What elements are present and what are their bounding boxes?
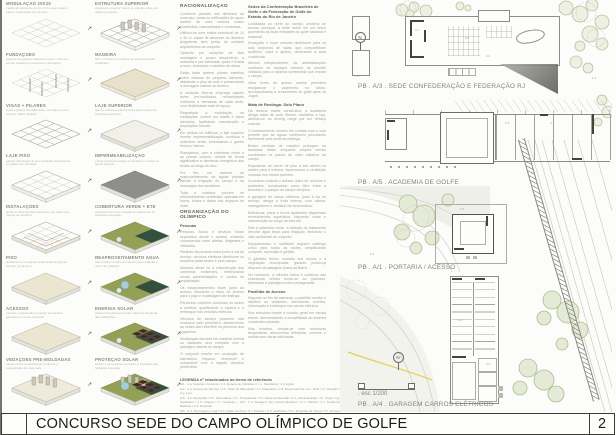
diagram-axon-drawing [6, 371, 86, 407]
dimension-text: 3.3 [486, 54, 490, 58]
a4-workshop-room [452, 362, 476, 400]
a1-wall [454, 248, 464, 250]
a5-wall [572, 158, 582, 160]
titlebar-left-cell [2, 414, 27, 434]
subheading-pavilhao: Pavilhão de Acesso [248, 289, 326, 294]
diagram-cell: REAPROVEITAMENTO ÁGUA reservatório recol… [95, 256, 181, 307]
wall-left-face [12, 185, 46, 203]
dimension-text: 4.1 [458, 318, 462, 322]
dimension-text: 1.4 [370, 252, 374, 256]
a4-wall [452, 278, 462, 280]
a4-parking-stalls-right [475, 282, 495, 356]
diagram-cell: IMPERMEABILIZAÇÃO manta contínua protege… [95, 154, 181, 205]
a1-kiosk [473, 256, 477, 259]
a5-wall [540, 114, 548, 116]
body-paragraph: Sua estrutura repete o módulo geral em e… [248, 311, 326, 324]
body-paragraph: Estruturas, pisos e forros aparentes dis… [248, 211, 326, 224]
body-paragraph: Da mesma matriz construtiva, a academia … [248, 109, 326, 127]
body-paragraph: No horizonte, a silhueta baixa e contínu… [248, 273, 326, 286]
diagram-axon-drawing [95, 117, 175, 153]
detail-arrow-icon: ↗ [87, 229, 92, 235]
legend-row: A/2 . 2 a. Acesso de Serviço / 2 b. Páti… [180, 388, 340, 396]
a4-wall [452, 356, 466, 358]
a1-kiosk [466, 256, 470, 259]
diagram-caption: painéis alveolares de piso apoiados dire… [6, 160, 72, 167]
diagram-label: MODULAÇÃO 10x10 [6, 2, 92, 7]
plan-label-a3: PB . A/3 . SEDE CONFEDERAÇÃO E FEDERAÇÃO… [358, 83, 525, 90]
diagram-axon-drawing [95, 320, 175, 356]
body-paragraph: Toda a madeira provém de reflorestamento… [180, 191, 244, 209]
diagram-label: FUNDAÇÕES [6, 53, 92, 58]
diagram-caption: malha de referência de 10 x 10 m que ord… [6, 7, 72, 14]
body-paragraph: Por fim, um sistema de reaproveitamento … [180, 171, 244, 189]
diagram-cell: VEDAÇÕES PRÉ-MOLDADAS painéis leves rema… [6, 358, 92, 409]
diagram-axon-drawing [6, 117, 86, 153]
a5-column-dots [390, 166, 460, 168]
diagram-cell: LAJE SUPERIOR laje de cobertura plana pr… [95, 104, 181, 155]
ete-tank-icon [116, 288, 121, 293]
a1-wall [486, 216, 488, 226]
detail-arrow-icon: ↗ [87, 280, 92, 286]
a4-equipment-pad [498, 393, 503, 398]
a3-wall [410, 56, 424, 58]
body-paragraph: Sinalização discreta em madeira orienta … [180, 337, 244, 350]
scale-bar-end [358, 383, 365, 389]
diagram-axon-drawing [6, 16, 86, 52]
roof-face [12, 323, 80, 351]
a4-support-room [478, 386, 497, 402]
diagram-axon-drawing [95, 16, 175, 52]
diagram-cell: ENERGIA SOLAR placas fotovoltaicas supre… [95, 307, 181, 358]
diagram-cell: MADEIRA forro e brises em madeira de ref… [95, 53, 181, 104]
plan-label-a5: PB . A/5 . ACADEMIA DE GOLFE [358, 179, 459, 186]
diagram-axon-drawing [95, 219, 175, 255]
paragraph-block: Da mesma matriz construtiva, a academia … [248, 109, 326, 286]
body-paragraph: Os estacionamentos ficam junto ao acesso… [180, 286, 244, 299]
diagram-label: VIGAS + PILARES [6, 104, 92, 109]
body-paragraph: Optando por soluções de fácil montagem e… [180, 51, 244, 69]
wall-right-face [135, 33, 169, 51]
section-heading-racionalizacao: RACIONALIZAÇÃO [180, 4, 244, 9]
diagram-cell: LAJE PISO painéis alveolares de piso apo… [6, 154, 92, 205]
dimension-text: 4.1 [550, 121, 554, 125]
diagram-caption: beirais e venezianas controlam a insolaç… [95, 363, 161, 370]
diagram-caption: vigas e pilares pré-fabricados montados … [6, 109, 72, 116]
body-paragraph: A portaria controla o acesso único de ve… [248, 179, 326, 192]
a3-wall [410, 40, 412, 56]
diagram-caption: cobertura viva com estação de tratamento… [95, 211, 161, 218]
a3-furniture-grid [448, 26, 480, 56]
water-tank-icon [121, 281, 129, 289]
diagram-label: PROTEÇÃO SOLAR [95, 358, 181, 363]
paragraph-block: Conforme previsto nas diretrizes do conc… [180, 12, 244, 209]
scale-bar-end [408, 383, 415, 389]
diagram-column-right: ESTRUTURA SUPERIOR vigamento superior ve… [95, 2, 181, 408]
axon-grid [12, 69, 80, 97]
diagram-label: PISO [6, 256, 92, 261]
a3-wall [410, 20, 424, 22]
body-paragraph: Respeitada a modulação, as instalações c… [180, 111, 244, 129]
body-paragraph: Vãos livres de quinze metros permitem re… [248, 81, 326, 99]
body-paragraph: Equipamentos e mobiliário seguem catálog… [248, 242, 326, 255]
diagram-column-left: MODULAÇÃO 10x10 malha de referência de 1… [6, 2, 92, 408]
dimension-text: 3.1 [415, 28, 419, 32]
body-paragraph: A garagem de carros elétricos, junto à v… [248, 195, 326, 208]
body-paragraph: Mesmo independentes, as administrações u… [248, 61, 326, 79]
diagram-cell: ACESSOS rampas e passarelas em todos os … [6, 307, 92, 358]
a1-gatehouse-inner [460, 221, 486, 245]
subheading-pessoas: Pessoas [180, 223, 244, 228]
detail-arrow-icon: ↗ [87, 77, 92, 83]
diagram-caption: rampas e passarelas em todos os acessos … [6, 312, 72, 319]
detail-arrow-icon: ↗ [87, 178, 92, 184]
paragraph-block: Disposto no fim da alameda, o pavilhão r… [248, 296, 326, 340]
a3-wall [410, 20, 412, 36]
legend-row: A/3 . 3 a. Recepção / 3 b. Secretarias /… [180, 397, 340, 409]
body-paragraph: Percursos cobertos conectam as sedes à s… [180, 301, 244, 314]
diagram-cell: ESTRUTURA SUPERIOR vigamento superior ve… [95, 2, 181, 53]
body-paragraph: O embasamento mínimo em contato com o so… [248, 129, 326, 142]
detail-arrow-icon: ↗ [87, 26, 92, 32]
diagram-cell: COBERTURA VERDE + ETE cobertura viva com… [95, 205, 181, 256]
diagram-axon-drawing [95, 66, 175, 102]
diagram-caption: reservatório recolhe as chuvas para irri… [95, 261, 161, 268]
roof-face [101, 171, 169, 199]
section-heading-sedes: Sedes da Confederação Brasileira de Golf… [248, 4, 326, 19]
roof-face [101, 69, 169, 97]
plan-label-a1: PB . A/1 . PORTARIA / ACESSO [358, 264, 455, 271]
dimension-text: 1.6 [460, 207, 464, 211]
scale-label: . esc 1/200 [358, 391, 387, 397]
text-column-rationalization: RACIONALIZAÇÃO Conforme previsto nas dir… [180, 4, 244, 375]
diagram-axon-drawing [6, 168, 86, 204]
a5-wall [387, 130, 389, 140]
plan-label-a4: PB . A/4 . GARAGEM CARROS ELÉTRICOS [358, 401, 493, 408]
dimension-text: 5.5 [465, 36, 469, 40]
diagram-label: IMPERMEABILIZAÇÃO [95, 154, 181, 159]
diagram-label: VEDAÇÕES PRÉ-MOLDADAS [6, 358, 92, 363]
body-paragraph: Conforme previsto nas diretrizes do conc… [180, 12, 244, 30]
diagram-caption: acabamento em placas cimentícias de gran… [6, 261, 72, 268]
board-title: CONCURSO SEDE DO CAMPO OLÍMPICO DE GOLFE [27, 414, 589, 434]
a5-court-inner [446, 118, 488, 158]
diagram-cell: PISO acabamento em placas cimentícias de… [6, 256, 92, 307]
body-paragraph: Localizada ao norte do campo, próxima ao… [248, 22, 326, 40]
diagram-axon-drawing [6, 320, 86, 356]
diagram-cell: FUNDAÇÕES estacas de pequeno diâmetro to… [6, 53, 92, 104]
plans-area: N PB . A/3 . SEDE CONFEDERAÇÃO E FEDERAÇ… [340, 0, 612, 412]
diagram-caption: forro e brises em madeira de reflorestam… [95, 58, 161, 65]
body-paragraph: O gabarito térreo, somado aos recuos e à… [248, 257, 326, 270]
diagram-caption: placas fotovoltaicas suprem parte da dem… [95, 312, 161, 319]
diagram-label: COBERTURA VERDE + ETE [95, 205, 181, 210]
north-arrow-a3: N [354, 32, 366, 50]
ete-tank-icon [116, 338, 121, 343]
north-letter: N [393, 352, 404, 363]
a5-wall [592, 114, 594, 134]
diagram-axon-drawing [6, 66, 86, 102]
diagram-label: INSTALAÇÕES [6, 205, 92, 210]
a4-center-spine [473, 282, 474, 356]
scale-bar [358, 383, 415, 390]
north-letter: N [355, 32, 366, 43]
detail-arrow-icon: ↗ [87, 382, 92, 388]
diagram-caption: painéis leves remanejáveis conforme a ne… [6, 363, 72, 370]
subheading-restinga: Mata de Restinga: Solo Plano [248, 102, 326, 107]
diagram-label: REAPROVEITAMENTO ÁGUA [95, 256, 181, 261]
section-heading-organizacao: ORGANIZAÇÃO DO OLÍMPICO [180, 210, 244, 220]
a3-wall [424, 30, 426, 42]
diagram-axon-drawing [95, 168, 175, 204]
a4-equipment-pad [498, 386, 503, 391]
detail-arrow-icon: ↗ [87, 128, 92, 134]
body-paragraph: A vedação interna emprega painéis leves … [180, 91, 244, 109]
diagram-label: ESTRUTURA SUPERIOR [95, 2, 181, 7]
body-paragraph: Desta base partem pilares esbeltos sobre… [180, 71, 244, 89]
diagram-caption: manta contínua protege a estrutura e con… [95, 160, 161, 167]
wall-right-face [46, 185, 80, 203]
ete-tank-icon [116, 237, 121, 242]
diagram-label: LAJE SUPERIOR [95, 104, 181, 109]
water-tank-icon [121, 382, 129, 390]
a3-annex-building [352, 50, 370, 76]
body-paragraph: Utilizou-se uma malha estrutural de 10 x… [180, 31, 244, 49]
a5-wall [387, 120, 395, 122]
diagram-caption: laje de cobertura plana pronta para rece… [95, 109, 161, 116]
diagram-label: MADEIRA [95, 53, 181, 58]
diagram-caption: vigamento superior vence os grandes vãos… [95, 7, 161, 14]
body-paragraph: Partindo da portaria única junto à via d… [180, 250, 244, 263]
dimension-text: 4.4 [486, 362, 490, 366]
diagram-label: ENERGIA SOLAR [95, 307, 181, 312]
diagram-axon-drawing [6, 270, 86, 306]
body-paragraph: O conjunto resulta em ocupação de baixís… [180, 352, 244, 370]
body-paragraph: Veículos de serviço possuem rota exclusi… [180, 317, 244, 335]
a3-bench-row [448, 68, 476, 76]
a4-support-room [478, 372, 497, 386]
diagram-caption: estacas de pequeno diâmetro tocam o solo… [6, 58, 72, 65]
diagram-caption: shafts e pisos técnicos distribuem as re… [6, 211, 72, 218]
text-column-sedes: Sedes da Confederação Brasileira de Golf… [248, 4, 326, 375]
body-paragraph: Sob a cobertura verde, a estação de trat… [248, 226, 326, 239]
axon-grid [12, 120, 80, 148]
body-paragraph: Pessoas, fluxos e serviços foram separad… [180, 230, 244, 248]
wall-left-face [101, 33, 135, 51]
paragraph-block: Localizada ao norte do campo, próxima ao… [248, 22, 326, 99]
title-bar: CONCURSO SEDE DO CAMPO OLÍMPICO DE GOLFE… [1, 413, 615, 435]
a3-furniture-grid [486, 26, 512, 38]
body-paragraph: Brises verticais de madeira protegem as … [248, 144, 326, 162]
diagram-cell: VIGAS + PILARES vigas e pilares pré-fabr… [6, 104, 92, 155]
dimension-text: 5.4 [505, 121, 509, 125]
road-fill [340, 276, 440, 412]
diagram-cell: PROTEÇÃO SOLAR beirais e venezianas cont… [95, 358, 181, 409]
page-number: 2 [589, 414, 614, 434]
axon-grid [12, 19, 80, 47]
body-paragraph: Esquadrias de correr de piso a teto abre… [248, 164, 326, 177]
body-paragraph: Planejamos, com a cobertura verde e as p… [180, 151, 244, 169]
diagram-label: ACESSOS [6, 307, 92, 312]
diagram-axon-drawing [6, 219, 86, 255]
body-paragraph: Recepção e foyer comuns distribuem para … [248, 41, 326, 59]
a3-entrance-box [478, 10, 510, 22]
body-paragraph: Disposto no fim da alameda, o pavilhão r… [248, 296, 326, 309]
diagram-axon-drawing [95, 270, 175, 306]
north-arrow-a4: N [392, 352, 404, 370]
diagram-label: LAJE PISO [6, 154, 92, 159]
detail-arrow-icon: ↗ [87, 331, 92, 337]
dimension-text: 1.4 [592, 76, 596, 80]
body-paragraph: Em ambos os edifícios, a laje superior r… [180, 131, 244, 149]
competition-board: MODULAÇÃO 10x10 malha de referência de 1… [0, 0, 616, 435]
sheet-edge [0, 0, 2, 435]
body-paragraph: Nos eventos, amplia-se com estruturas te… [248, 327, 326, 340]
axon-grid [12, 171, 80, 199]
body-paragraph: Adotada ainda foi a manutenção dos camin… [180, 266, 244, 284]
a4-wall [475, 278, 485, 280]
diagram-cell: INSTALAÇÕES shafts e pisos técnicos dist… [6, 205, 92, 256]
paragraph-block: Pessoas, fluxos e serviços foram separad… [180, 230, 244, 369]
roof-face [12, 273, 80, 301]
roof-face [101, 120, 169, 148]
diagram-axon-drawing [95, 371, 175, 407]
diagram-cell: MODULAÇÃO 10x10 malha de referência de 1… [6, 2, 92, 53]
